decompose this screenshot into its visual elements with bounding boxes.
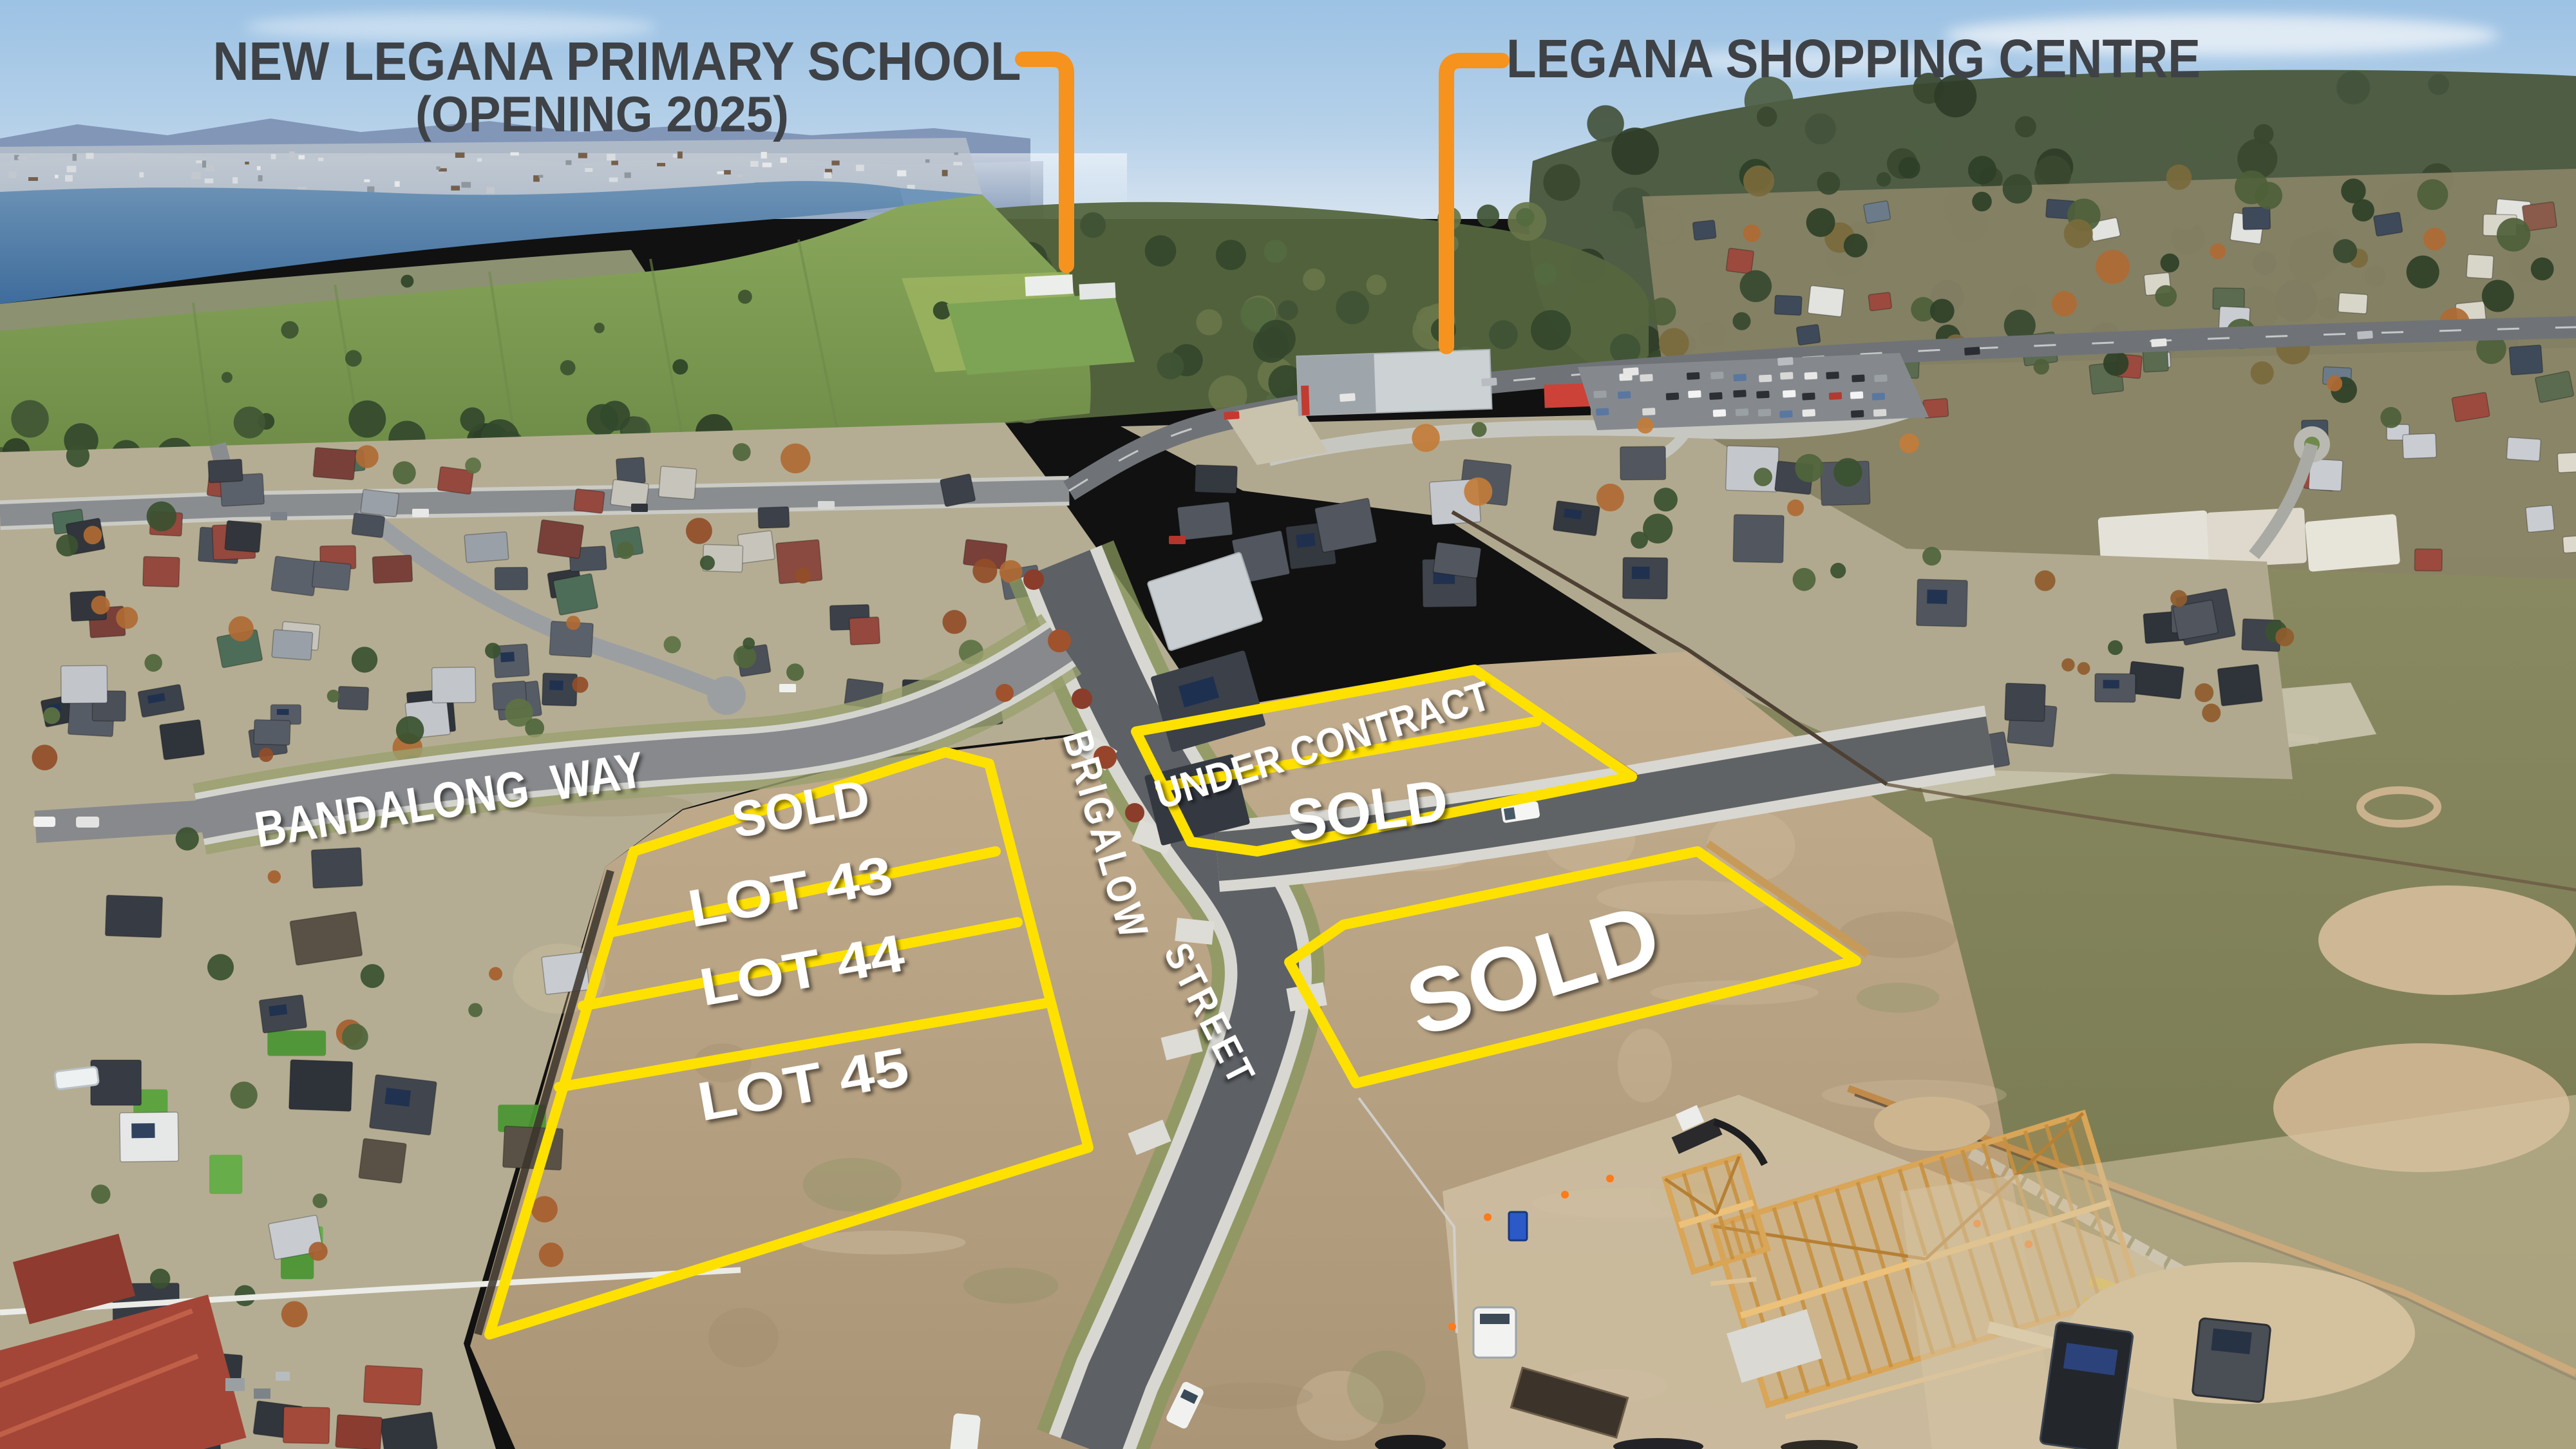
distant-building: [191, 172, 201, 179]
tree: [1637, 417, 1653, 433]
tree: [2096, 250, 2130, 284]
tree: [2155, 285, 2177, 307]
safety-cone: [1606, 1175, 1614, 1182]
truck-windshield: [1480, 1314, 1510, 1324]
storage-item: [276, 1372, 290, 1381]
distant-building: [831, 160, 839, 165]
tree: [1757, 106, 1777, 126]
tree: [1743, 166, 1774, 196]
house: [2526, 505, 2555, 532]
tree: [2161, 254, 2179, 272]
parked-car: [76, 817, 99, 828]
house: [352, 513, 385, 538]
tree: [393, 461, 416, 484]
truck-window: [2211, 1329, 2251, 1354]
tree: [460, 408, 485, 432]
car: [1169, 536, 1186, 544]
ground-patch: [1191, 1383, 1313, 1409]
distant-building: [953, 162, 962, 165]
parked-car: [1802, 409, 1815, 417]
tree: [2183, 119, 2226, 162]
tree: [560, 360, 576, 375]
distant-building: [364, 179, 370, 182]
distant-building: [607, 154, 615, 161]
distant-building: [897, 170, 906, 176]
tree: [2341, 178, 2365, 203]
car: [1964, 346, 1980, 355]
dirt-mound: [2318, 885, 2576, 995]
tree: [11, 400, 48, 437]
retirement-village-roof: [2206, 507, 2307, 568]
tree: [281, 1301, 308, 1327]
car: [1777, 357, 1794, 366]
aerial-photo: SOLD LOT 43 LOT 44 LOT 45 UNDER CONTRACT…: [0, 0, 2576, 1449]
solar-panels: [500, 652, 515, 662]
tree: [1477, 205, 1499, 227]
tree: [781, 444, 810, 473]
tree: [2061, 658, 2074, 671]
tree: [733, 443, 751, 461]
car: [412, 509, 429, 517]
distant-building: [55, 175, 58, 178]
tree: [229, 616, 254, 641]
house: [2309, 459, 2343, 491]
distant-building: [761, 152, 767, 158]
tree: [2531, 258, 2554, 281]
tree: [2418, 179, 2448, 210]
tree: [147, 502, 176, 531]
lawn: [267, 1030, 326, 1056]
solar-panels: [549, 680, 563, 690]
distant-building: [72, 154, 76, 161]
tree: [1336, 291, 1369, 325]
tree: [355, 445, 379, 468]
retirement-village-roof: [2305, 514, 2400, 572]
tree: [1412, 424, 1440, 452]
parked-car: [1733, 374, 1747, 381]
house: [160, 719, 205, 760]
car: [2151, 338, 2167, 347]
tree: [2380, 407, 2401, 428]
tree: [1464, 477, 1492, 506]
tree: [2497, 218, 2530, 251]
house: [272, 629, 313, 660]
distant-building: [67, 166, 77, 172]
car: [631, 504, 648, 512]
car: [270, 512, 287, 520]
lawn: [209, 1155, 242, 1194]
tree: [539, 1242, 563, 1267]
tree: [1264, 240, 1287, 263]
screenshot-root: SOLD LOT 43 LOT 44 LOT 45 UNDER CONTRACT…: [0, 0, 2576, 1449]
parked-car: [1759, 375, 1772, 383]
tree: [2003, 174, 2032, 204]
tree: [43, 707, 60, 724]
house: [225, 520, 261, 553]
distant-building: [673, 154, 677, 158]
house: [1692, 220, 1716, 240]
school-building: [1079, 283, 1115, 300]
house: [2509, 345, 2543, 375]
tree: [2202, 704, 2221, 723]
tree: [465, 457, 481, 473]
house: [361, 489, 399, 517]
parked-car: [1733, 390, 1747, 397]
house: [336, 1415, 383, 1449]
tree: [1899, 433, 1919, 453]
house: [2143, 350, 2168, 372]
shopping-centre-title: LEGANA SHOPPING CENTRE: [1506, 28, 2201, 89]
tree: [234, 406, 265, 438]
car: [1623, 367, 1639, 376]
parked-car: [1851, 375, 1865, 383]
tree: [1196, 309, 1222, 336]
distant-building: [461, 182, 471, 188]
tree: [231, 1081, 258, 1108]
solar-panels: [131, 1123, 155, 1138]
tree: [1930, 299, 1955, 323]
tree: [2275, 628, 2294, 647]
tree: [2327, 375, 2342, 391]
house: [2557, 452, 2576, 473]
tree: [312, 1193, 327, 1208]
ornamental-tree: [1125, 803, 1144, 822]
distant-building: [954, 153, 958, 155]
house: [2338, 293, 2368, 314]
parked-car: [1829, 392, 1842, 400]
car: [1224, 411, 1240, 420]
ornamental-tree: [1023, 569, 1044, 590]
distant-building: [455, 153, 465, 158]
tree: [2423, 228, 2446, 251]
tree: [84, 526, 102, 545]
tree: [1877, 172, 1891, 186]
caravan: [55, 1066, 99, 1090]
tree: [795, 568, 811, 584]
tree: [1145, 235, 1177, 267]
parked-car: [1687, 372, 1700, 380]
tree: [2015, 116, 2036, 137]
distant-building: [202, 160, 206, 167]
parked-car: [1802, 393, 1815, 401]
distant-building: [486, 187, 494, 193]
house: [372, 555, 412, 583]
tree: [1631, 531, 1648, 549]
distant-building: [585, 168, 592, 172]
house: [553, 573, 598, 615]
house: [940, 474, 976, 507]
distant-building: [232, 177, 238, 184]
storage-item: [225, 1378, 245, 1391]
house: [2506, 437, 2541, 461]
tree: [686, 518, 712, 544]
distant-building: [139, 172, 144, 177]
parked-car: [1713, 409, 1727, 417]
tree: [396, 716, 424, 744]
car: [818, 501, 835, 509]
house: [1808, 285, 1844, 317]
tree: [1472, 422, 1486, 437]
tree: [1795, 454, 1823, 482]
tree: [1543, 164, 1580, 201]
tree: [2035, 571, 2056, 591]
tree: [2195, 683, 2213, 702]
distant-building: [257, 166, 261, 170]
tree: [1258, 320, 1296, 358]
tree: [144, 654, 162, 672]
white-van: [950, 1413, 981, 1449]
tree: [1806, 208, 1835, 237]
house: [105, 895, 162, 938]
distant-building: [271, 154, 276, 159]
distant-building: [677, 151, 683, 158]
distant-building: [538, 175, 543, 178]
distant-building: [130, 156, 136, 160]
house: [254, 719, 290, 745]
distant-building: [29, 153, 36, 156]
house: [1868, 292, 1892, 311]
tree: [1968, 156, 1996, 184]
ground-patch: [963, 1268, 1059, 1304]
distant-building: [395, 181, 400, 187]
ground-patch: [1347, 1350, 1426, 1424]
school-title-line2: (OPENING 2025): [415, 86, 789, 142]
parked-car: [1783, 390, 1796, 398]
tree: [1611, 128, 1659, 175]
house: [61, 665, 108, 703]
tree: [1278, 300, 1298, 320]
safety-cone: [1484, 1213, 1492, 1221]
tree: [664, 636, 681, 654]
tree: [2064, 219, 2093, 248]
tree: [1793, 568, 1816, 591]
parked-car: [1593, 390, 1607, 398]
solar-panels: [277, 709, 289, 715]
tree: [2407, 256, 2439, 289]
house: [271, 556, 318, 596]
distant-building: [609, 178, 618, 182]
parked-car: [1780, 372, 1794, 380]
tree: [972, 559, 997, 583]
house: [1147, 552, 1262, 650]
house: [313, 448, 356, 480]
house: [1864, 201, 1891, 223]
car: [1481, 377, 1497, 386]
distant-building: [477, 158, 482, 162]
tree: [1844, 234, 1868, 258]
tree: [345, 350, 362, 366]
house: [143, 556, 180, 587]
distant-building: [942, 170, 948, 176]
distant-building: [565, 160, 571, 165]
distant-building: [65, 175, 73, 182]
house: [290, 911, 363, 965]
house: [1726, 248, 1754, 274]
tree: [734, 645, 757, 668]
house: [464, 532, 509, 563]
tree: [2333, 239, 2357, 263]
tree: [91, 596, 110, 614]
tree: [468, 1003, 482, 1017]
tree: [2166, 164, 2192, 190]
tree: [2210, 243, 2226, 260]
tree: [1516, 208, 1535, 227]
house: [1726, 446, 1779, 492]
tree: [1787, 500, 1804, 516]
house: [2128, 661, 2184, 699]
house: [283, 1406, 330, 1443]
tree: [1899, 157, 1920, 179]
house: [2373, 212, 2403, 236]
tree: [401, 275, 413, 288]
house: [208, 459, 243, 483]
tree: [672, 359, 688, 375]
tree: [1157, 352, 1184, 379]
tree: [2052, 291, 2077, 316]
solar-panels: [1296, 533, 1316, 548]
car: [2357, 330, 2373, 339]
distant-building: [762, 163, 772, 167]
distant-building: [724, 170, 731, 175]
house: [2403, 433, 2437, 459]
tree: [600, 401, 630, 431]
tree: [361, 964, 384, 988]
ground-patch: [1857, 983, 1940, 1012]
tree: [91, 1184, 110, 1204]
tree: [348, 401, 386, 438]
tree: [485, 643, 500, 658]
school-field: [947, 294, 1135, 375]
tree: [1596, 484, 1624, 511]
distant-building: [781, 158, 787, 163]
tree: [259, 748, 273, 762]
house: [1433, 542, 1481, 578]
tree: [1739, 270, 1772, 303]
house: [1177, 502, 1233, 540]
parked-car: [1826, 372, 1839, 379]
house: [849, 617, 880, 645]
tree: [594, 323, 604, 333]
tree: [2034, 359, 2049, 374]
tree: [1922, 547, 1941, 565]
house: [2467, 254, 2494, 279]
distant-building: [738, 175, 743, 177]
tree: [342, 1024, 368, 1050]
house: [574, 489, 605, 513]
dirt-mound: [1874, 1097, 1990, 1151]
house: [1733, 515, 1784, 563]
tree: [2336, 71, 2370, 104]
tree: [2170, 590, 2187, 607]
ute-cab: [1504, 808, 1516, 820]
distant-building: [245, 162, 249, 164]
tree: [1648, 298, 1676, 325]
tree: [1817, 172, 1840, 195]
tree: [572, 677, 588, 693]
tree: [1489, 320, 1518, 349]
tree: [786, 663, 804, 681]
distant-building: [289, 151, 295, 158]
tree: [308, 1242, 327, 1260]
storage-item: [254, 1388, 270, 1399]
house: [289, 1059, 353, 1111]
tree: [1534, 263, 1556, 285]
tree: [1598, 211, 1635, 248]
tree: [700, 555, 715, 570]
tree: [2078, 662, 2090, 675]
house: [1314, 498, 1377, 553]
house: [2414, 549, 2442, 571]
tree: [738, 290, 752, 304]
tree: [566, 616, 580, 630]
ornamental-tree: [996, 684, 1014, 702]
parked-car: [1873, 409, 1887, 417]
parked-car: [1756, 391, 1770, 399]
tree: [1366, 275, 1387, 296]
distant-building: [205, 178, 214, 183]
distant-building: [451, 185, 460, 190]
parked-car: [1710, 372, 1724, 379]
tree: [616, 542, 634, 559]
tree: [327, 690, 340, 703]
distant-building: [750, 161, 758, 167]
ornamental-tree: [1072, 688, 1092, 709]
parked-car: [1758, 409, 1772, 417]
tree: [1754, 468, 1772, 486]
school-building: [1025, 274, 1073, 296]
house: [432, 667, 476, 703]
house: [2452, 392, 2490, 422]
tree: [2108, 640, 2123, 655]
distant-building: [578, 153, 587, 158]
solar-panels: [1927, 590, 1947, 604]
distant-building: [657, 163, 665, 166]
safety-cone: [1448, 1323, 1456, 1331]
shops-red-signage: [1301, 386, 1310, 415]
tree: [2066, 82, 2109, 126]
distant-building: [511, 152, 519, 155]
tree: [1216, 240, 1246, 270]
tree: [1833, 458, 1862, 486]
parked-car: [1709, 392, 1723, 400]
parked-car: [1779, 410, 1793, 418]
ground-patch: [708, 1308, 779, 1367]
distant-building: [17, 156, 27, 160]
solar-panels: [384, 1088, 411, 1106]
house: [312, 561, 351, 591]
house: [537, 520, 583, 558]
tree: [1654, 488, 1678, 511]
parked-car: [1618, 391, 1631, 399]
parked-car: [1666, 393, 1680, 401]
tree: [1080, 212, 1106, 238]
solar-panels: [2103, 680, 2119, 688]
school-title-line1: NEW LEGANA PRIMARY SCHOOL: [213, 31, 1021, 91]
tree: [2482, 280, 2514, 312]
tree: [531, 1196, 558, 1222]
tree: [1732, 312, 1750, 330]
tree: [281, 321, 298, 339]
parked-car: [1736, 408, 1749, 416]
tree: [116, 607, 138, 629]
distant-building: [925, 159, 930, 162]
distant-building: [258, 175, 263, 181]
tree: [150, 1269, 170, 1289]
tree: [1972, 192, 1992, 212]
house: [338, 687, 369, 710]
parked-car: [33, 817, 55, 827]
parked-car: [1874, 374, 1888, 382]
